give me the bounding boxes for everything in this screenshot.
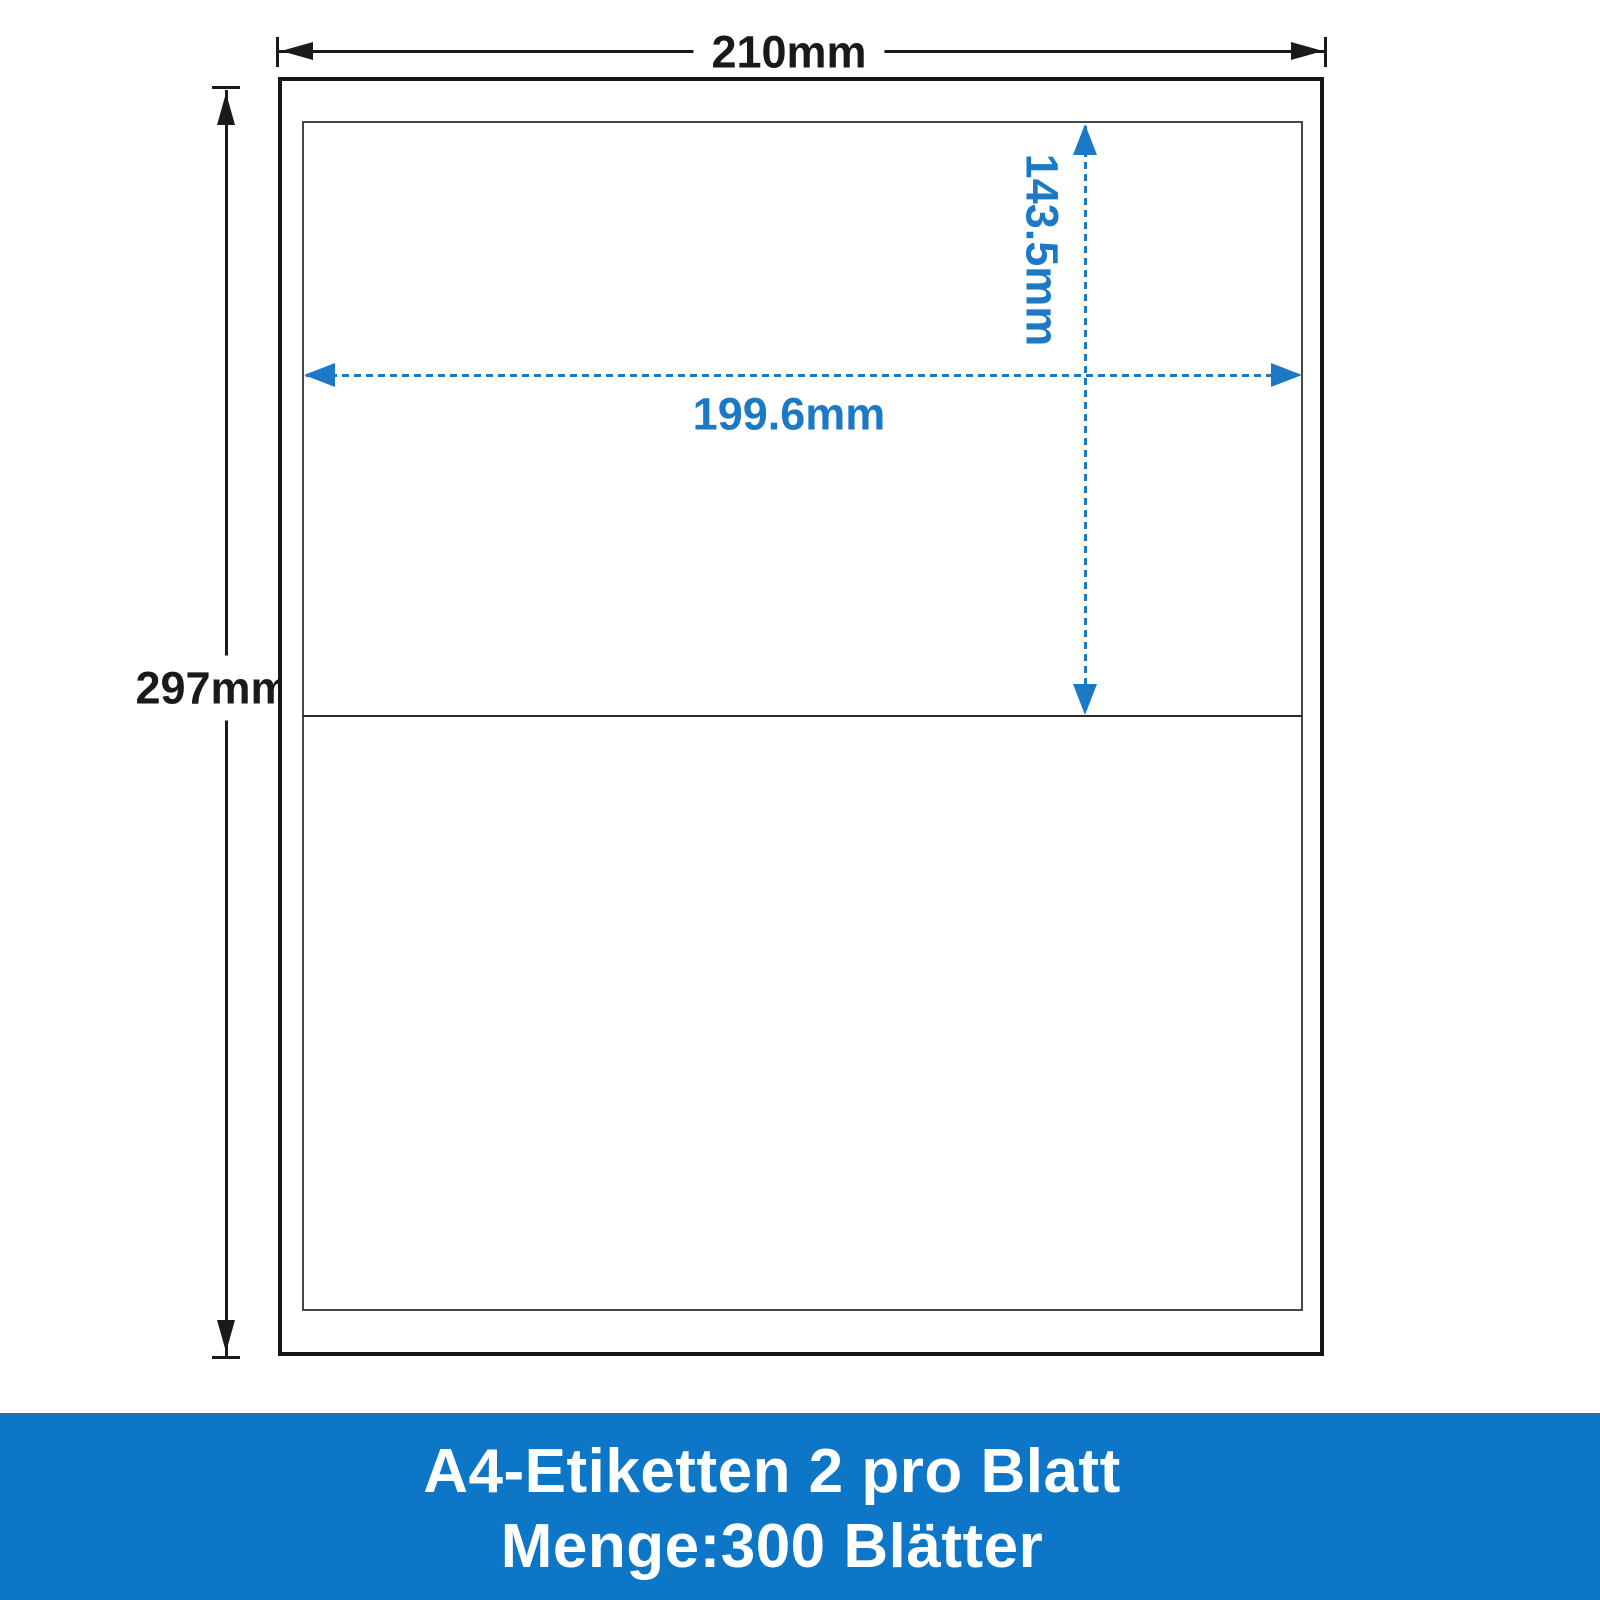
tick — [276, 37, 279, 67]
arrow-down-icon — [1073, 684, 1097, 715]
arrow-left-icon — [281, 42, 313, 60]
dimension-line — [225, 90, 228, 1358]
label-height-label: 143.5mm — [1020, 154, 1065, 347]
label-sheet-diagram: 210mm 297mm 199.6mm 143.5mm A4-Etiketten… — [0, 0, 1600, 1600]
arrow-up-icon — [1073, 124, 1097, 155]
tick — [1324, 37, 1327, 67]
sheet-width-label: 210mm — [693, 26, 884, 79]
arrow-up-icon — [217, 93, 235, 125]
dimension-line — [1084, 126, 1087, 712]
tick — [212, 1356, 240, 1359]
banner-title-line2: Menge:300 Blätter — [501, 1509, 1044, 1584]
product-banner: A4-Etiketten 2 pro Blatt Menge:300 Blätt… — [0, 1413, 1600, 1600]
arrow-right-icon — [1271, 363, 1302, 387]
tick — [212, 86, 240, 89]
arrow-down-icon — [217, 1320, 235, 1352]
sheet-height-label: 297mm — [127, 656, 298, 721]
label-divider — [303, 715, 1302, 717]
arrow-left-icon — [304, 363, 335, 387]
dimension-line — [306, 374, 1299, 377]
label-width-label: 199.6mm — [693, 392, 886, 437]
arrow-right-icon — [1291, 42, 1323, 60]
banner-title-line1: A4-Etiketten 2 pro Blatt — [423, 1434, 1121, 1509]
